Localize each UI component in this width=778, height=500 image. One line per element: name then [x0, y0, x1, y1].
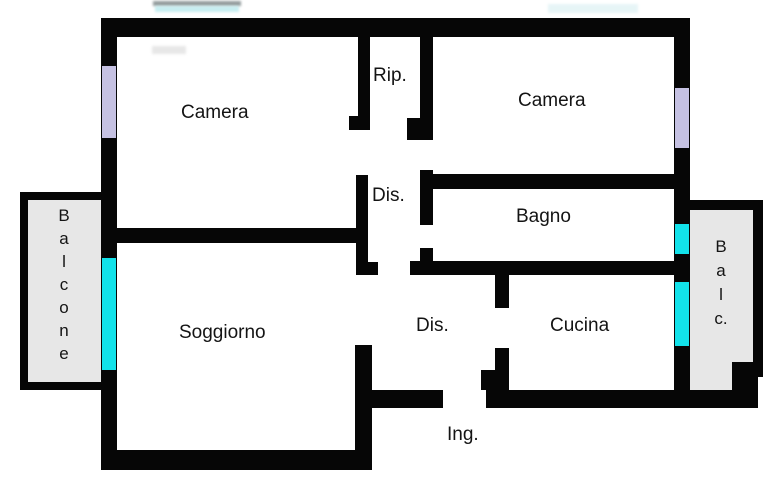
wall-rip-left-jamb	[349, 116, 358, 130]
room-label-camera-left: Camera	[181, 103, 249, 123]
wall-dis-left-jamb	[368, 262, 378, 275]
wall-bagno-top	[420, 174, 674, 189]
wall-bottom-entrance-left	[372, 390, 443, 408]
room-label-soggiorno: Soggiorno	[179, 323, 266, 343]
wall-rip-left	[358, 37, 370, 130]
window-camera-right	[675, 88, 689, 148]
room-label-bagno: Bagno	[516, 207, 571, 227]
wall-bagno-bottom	[410, 261, 674, 275]
floor-plan: Camera Rip. Camera Dis. Bagno Soggiorno …	[0, 0, 778, 500]
room-label-ingresso: Ing.	[447, 425, 479, 445]
wall-cucina-left-upper	[495, 261, 509, 308]
room-label-rip: Rip.	[373, 66, 407, 86]
wall-cucina-left-lower	[495, 348, 509, 408]
scan-artifact-cyan	[155, 6, 239, 12]
wall-top-exterior	[101, 18, 690, 37]
wall-right-exterior	[674, 18, 690, 408]
balcony-label-right: B a l c.	[702, 235, 740, 331]
window-cucina-balcony-door	[675, 282, 689, 346]
scan-artifact-light	[548, 4, 638, 13]
wall-bottom-soggiorno	[101, 450, 372, 470]
window-bagno	[675, 224, 689, 254]
wall-camera-soggiorno-divider	[101, 228, 368, 243]
room-label-dis-upper: Dis.	[372, 186, 405, 206]
room-label-dis-lower: Dis.	[416, 316, 449, 336]
wall-cucina-left-jamb	[481, 370, 495, 390]
wall-rip-right	[420, 37, 433, 140]
wall-rip-right-jamb	[407, 118, 420, 140]
balcony-label-left: B a l c o n e	[46, 204, 82, 365]
wall-bottom-right	[486, 390, 743, 408]
room-label-cucina: Cucina	[550, 316, 609, 336]
scan-artifact-smudge	[152, 46, 186, 54]
window-camera-left	[102, 66, 116, 138]
wall-dis-left	[356, 175, 368, 275]
room-label-camera-right: Camera	[518, 91, 586, 111]
wall-soggiorno-right	[355, 345, 372, 470]
window-soggiorno-balcony-door	[102, 258, 116, 370]
